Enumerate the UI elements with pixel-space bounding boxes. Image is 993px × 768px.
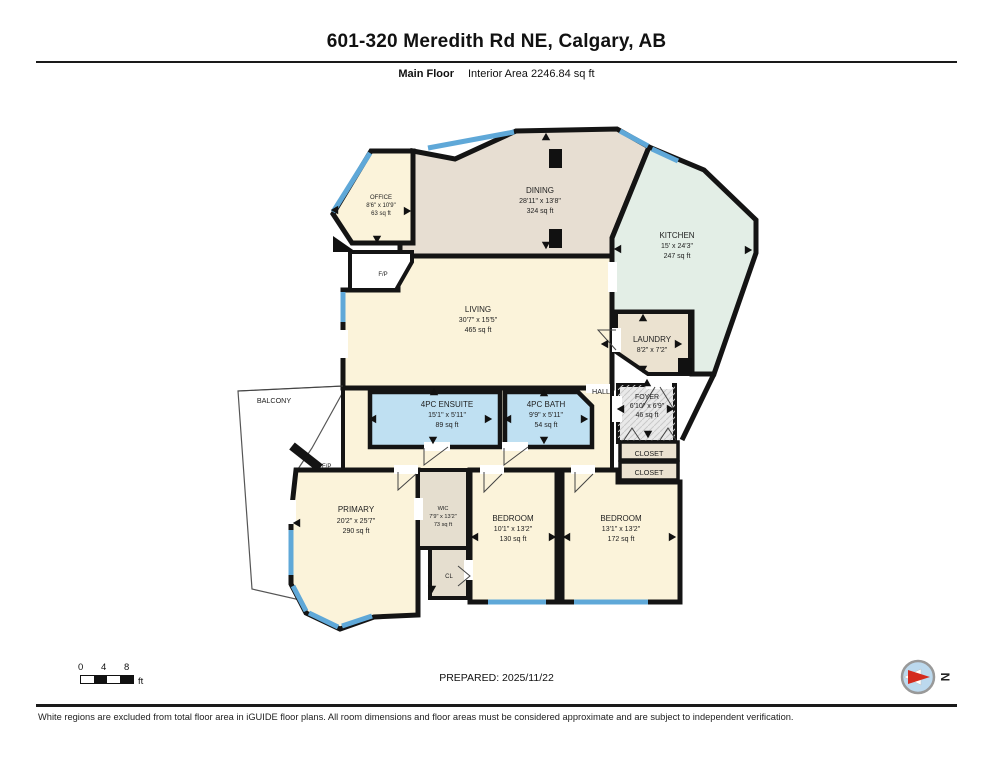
- hall-label: HALL: [592, 387, 610, 396]
- bedroom1-area: 130 sq ft: [500, 536, 527, 543]
- wic-area: 73 sq ft: [434, 522, 453, 528]
- wall-column: [549, 229, 562, 248]
- ensuite-name: 4PC ENSUITE: [421, 400, 473, 409]
- footer-divider: [36, 704, 957, 707]
- fp-primary-label: F/P: [322, 464, 331, 470]
- foyer-dims: 6'10" x 6'9": [630, 403, 665, 410]
- laundry-name: LAUNDRY: [633, 335, 672, 344]
- primary-dims: 20'2" x 25'7": [337, 518, 376, 525]
- closet-cl: [430, 548, 468, 598]
- bedroom1-dims: 10'1" x 13'2": [494, 526, 533, 533]
- bath-area: 54 sq ft: [535, 422, 558, 429]
- kitchen-dims: 15' x 24'3": [661, 243, 694, 250]
- dining-area: 324 sq ft: [527, 208, 554, 215]
- cl-label: CL: [445, 574, 453, 580]
- bath-dims: 9'9" x 5'11": [529, 412, 563, 419]
- wall-column: [678, 358, 692, 374]
- primary-name: PRIMARY: [338, 505, 375, 514]
- disclaimer-text: White regions are excluded from total fl…: [38, 712, 958, 722]
- bedroom2-dims: 13'1" x 13'2": [602, 526, 641, 533]
- wic-name: WIC: [438, 506, 449, 512]
- room-primary: [291, 470, 418, 629]
- floorplan-page: 601-320 Meredith Rd NE, Calgary, AB Main…: [0, 0, 993, 768]
- bedroom1-name: BEDROOM: [492, 514, 534, 523]
- wall-segment: [682, 374, 714, 440]
- living-name: LIVING: [465, 305, 491, 314]
- bedroom2-area: 172 sq ft: [608, 536, 635, 543]
- living-area: 465 sq ft: [465, 327, 492, 334]
- laundry-dims: 8'2" x 7'2": [637, 347, 668, 354]
- foyer-area: 46 sq ft: [636, 412, 659, 419]
- balcony-label: BALCONY: [257, 396, 292, 405]
- office-area: 63 sq ft: [371, 211, 391, 217]
- dining-name: DINING: [526, 186, 554, 195]
- wall-column: [549, 149, 562, 168]
- kitchen-name: KITCHEN: [659, 231, 694, 240]
- fp-living-label: F/P: [378, 272, 387, 278]
- living-dims: 30'7" x 15'5": [459, 317, 498, 324]
- closet-top-label: CLOSET: [635, 449, 664, 458]
- prepared-date: PREPARED: 2025/11/22: [0, 672, 993, 684]
- bath-name: 4PC BATH: [527, 400, 566, 409]
- floorplan-drawing: OFFICE 8'6" x 10'9" 63 sq ft DINING 28'1…: [0, 0, 993, 768]
- ensuite-dims: 15'1" x 5'11": [428, 412, 466, 419]
- wic-dims: 7'9" x 13'2": [429, 514, 457, 520]
- primary-area: 290 sq ft: [343, 528, 370, 535]
- dining-dims: 28'11" x 13'8": [519, 198, 561, 205]
- kitchen-area: 247 sq ft: [664, 253, 691, 260]
- bedroom2-name: BEDROOM: [600, 514, 642, 523]
- closet-bottom-label: CLOSET: [635, 468, 664, 477]
- ensuite-area: 89 sq ft: [436, 422, 459, 429]
- office-dims: 8'6" x 10'9": [366, 203, 396, 209]
- foyer-name: FOYER: [635, 394, 659, 401]
- office-name: OFFICE: [370, 195, 392, 201]
